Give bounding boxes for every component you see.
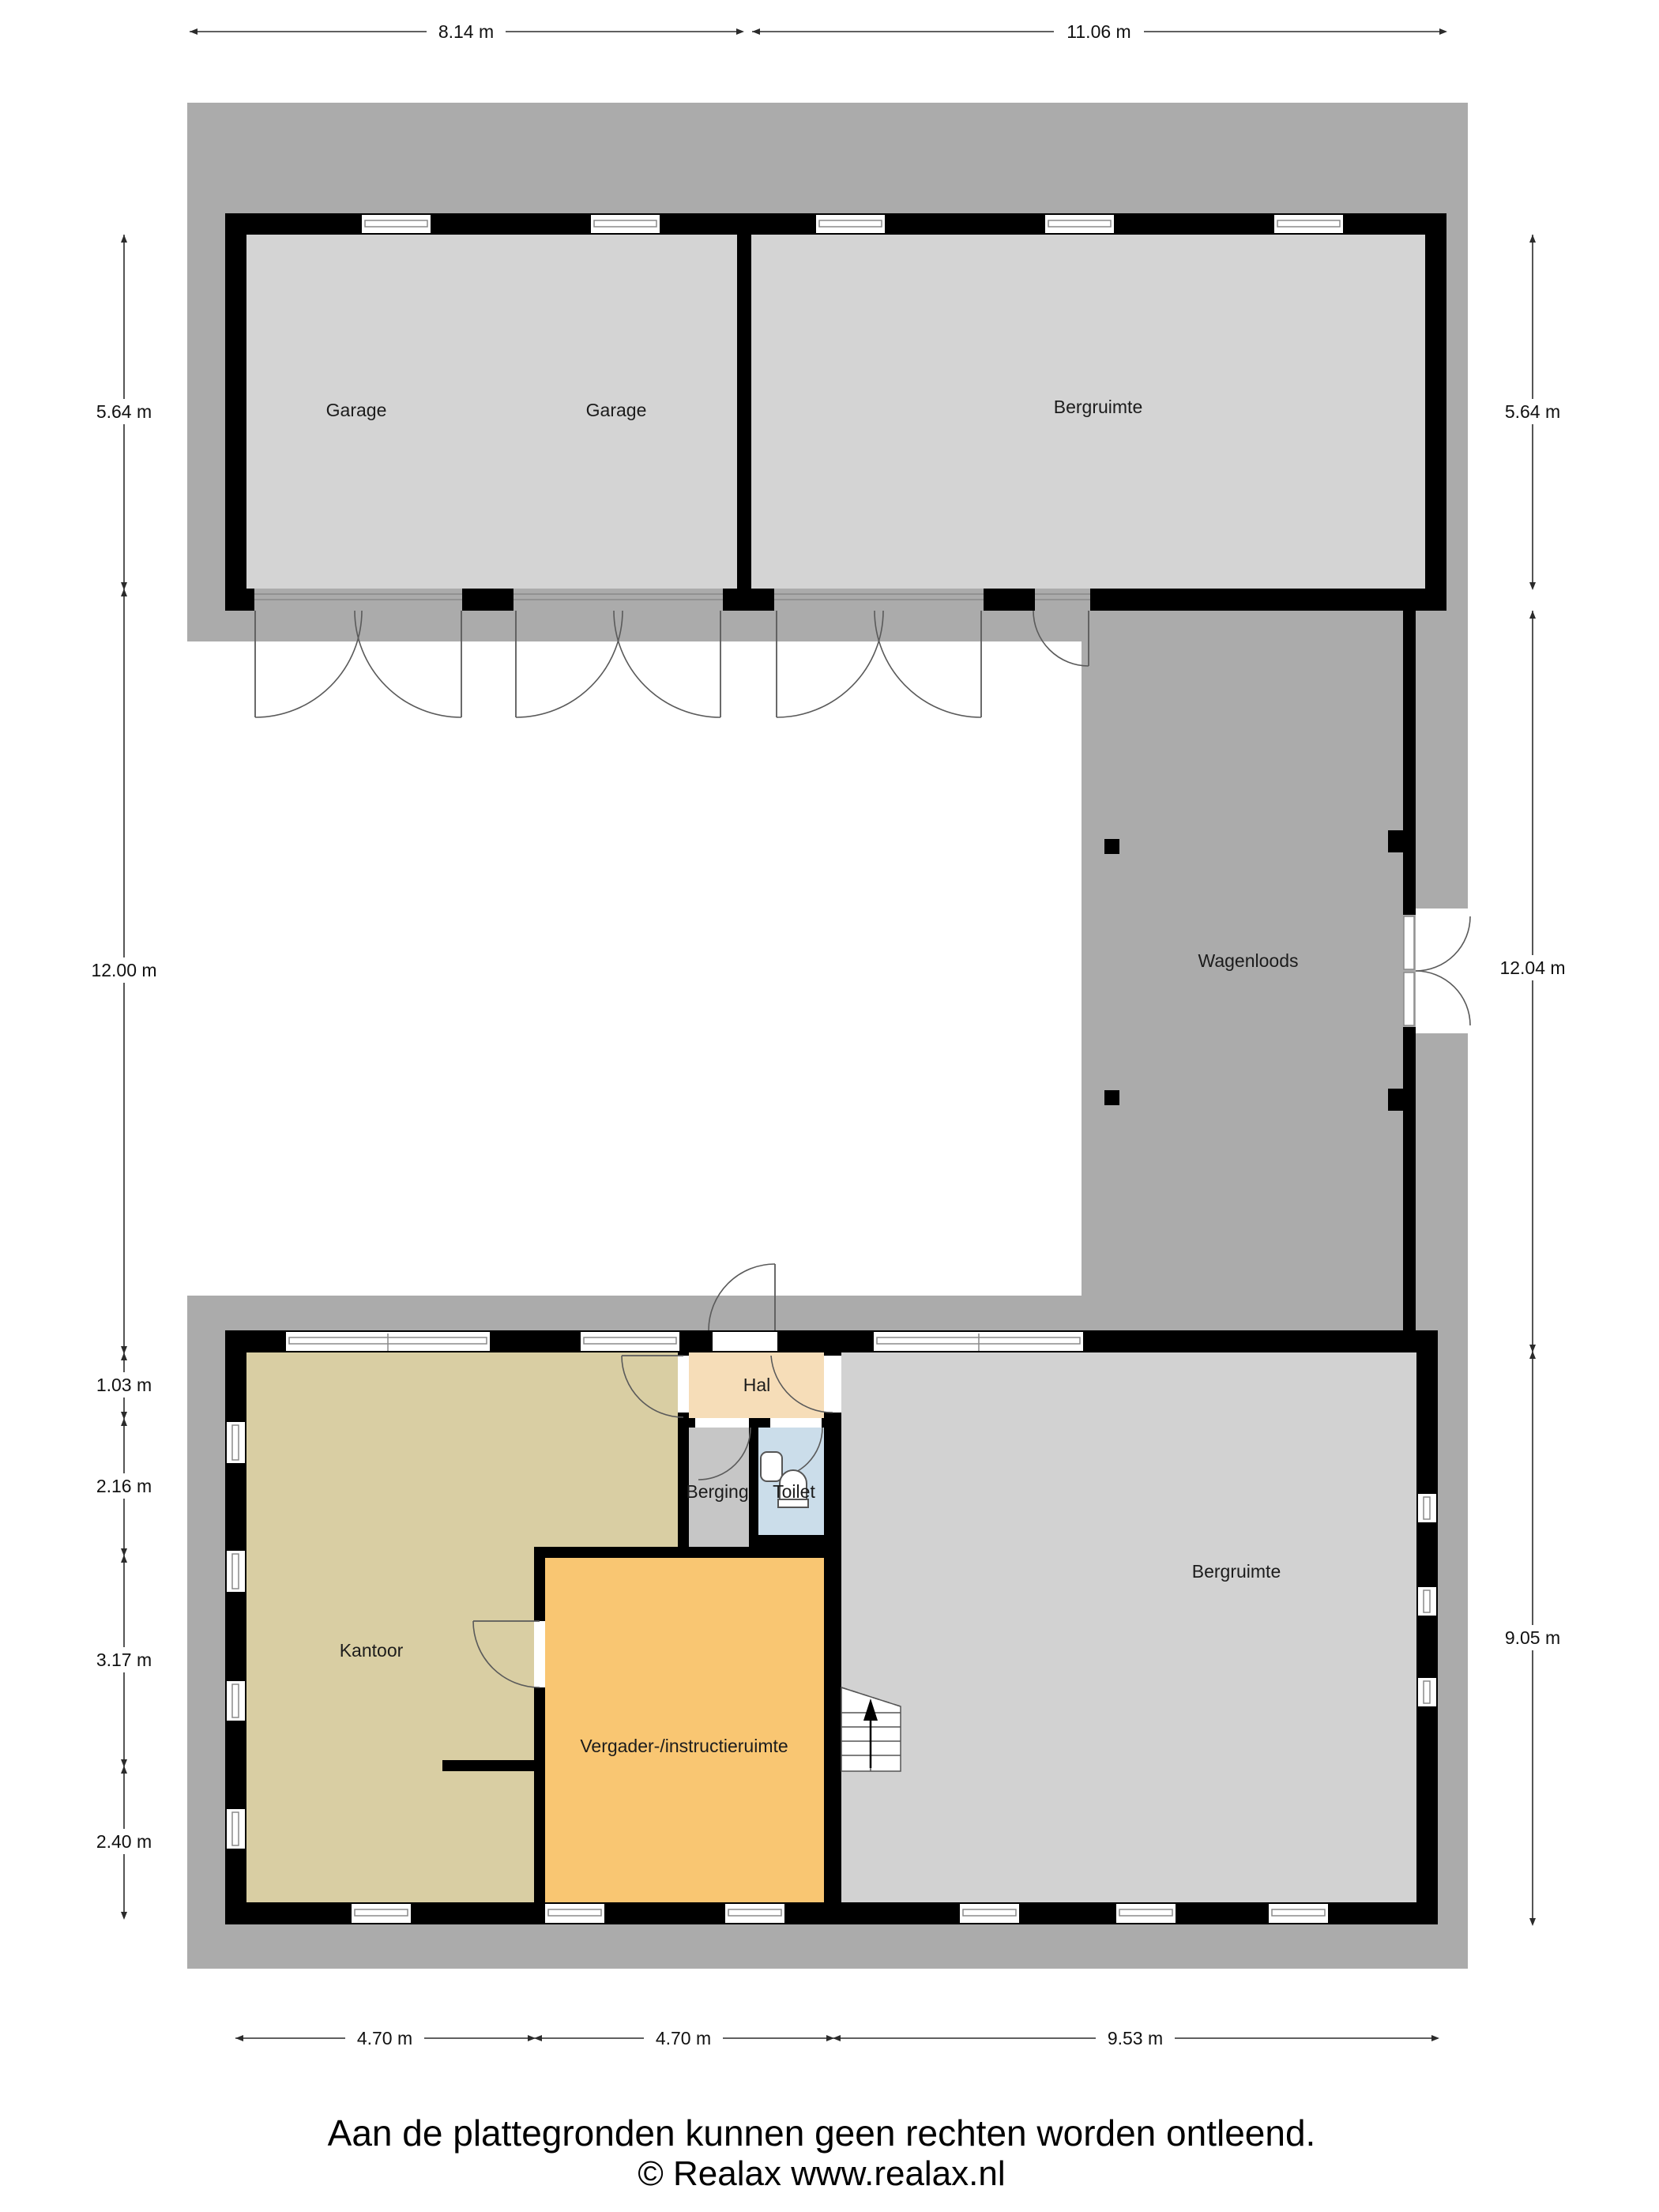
window-glazing (963, 1909, 1016, 1916)
window-glazing (1272, 1909, 1325, 1916)
door-opening (824, 1356, 841, 1413)
room-label-toilet: Toilet (773, 1481, 815, 1502)
wall-front-pier (723, 589, 774, 611)
window-glazing (1119, 1909, 1172, 1916)
window-glazing (365, 220, 427, 227)
window-glazing (1424, 1497, 1430, 1519)
window-glazing (548, 1909, 601, 1916)
window-glazing (1277, 220, 1340, 227)
dim-label-right-3: 9.05 m (1505, 1627, 1560, 1648)
wall-left (225, 213, 246, 611)
wall-front-segment (1090, 589, 1446, 611)
dim-label-left-6: 2.40 m (96, 1831, 152, 1852)
wall-right (1416, 1330, 1438, 1924)
dim-label-bottom-3: 9.53 m (1108, 2028, 1163, 2048)
wagenloods-east-wall-upper (1403, 611, 1416, 915)
door-opening (678, 1356, 689, 1413)
wall-vergader-north (534, 1547, 824, 1558)
floor-vergaderruimte (545, 1558, 824, 1902)
column-post (1104, 1090, 1119, 1105)
footer-disclaimer: Aan de plattegronden kunnen geen rechten… (328, 2112, 1316, 2154)
floorplan-drawing: Garage Garage Bergruimte Wagenloods Hal … (0, 0, 1659, 2212)
wall-front-pier (225, 589, 254, 611)
wall-garage-bergruimte-divider (737, 235, 751, 589)
footer-copyright: © Realax www.realax.nl (638, 2154, 1005, 2193)
wall-pilaster (1388, 830, 1403, 852)
floor-garages-bergruimte (246, 235, 1425, 589)
window-glazing (584, 1337, 676, 1344)
wall-front-pier (462, 589, 513, 611)
wall-kantoor-stub (442, 1760, 545, 1771)
dim-label-top-1: 8.14 m (438, 21, 494, 42)
dim-label-right-1: 5.64 m (1505, 401, 1560, 422)
washbasin (761, 1452, 782, 1481)
dim-label-left-5: 3.17 m (96, 1650, 152, 1670)
wall-bergruimte-west (824, 1352, 841, 1902)
room-label-bergruimte-top: Bergruimte (1054, 397, 1142, 417)
dim-label-left-4: 2.16 m (96, 1476, 152, 1496)
window-glazing (1424, 1590, 1430, 1612)
window-glazing (728, 1909, 781, 1916)
door-leaf-closed (1404, 916, 1414, 969)
window-glazing (232, 1425, 239, 1460)
wagenloods-east-wall-lower (1403, 1027, 1416, 1351)
wall-vergader-west (534, 1558, 545, 1902)
window-glazing (819, 220, 882, 227)
entrance-door-opening (713, 1332, 777, 1351)
window-glazing (1048, 220, 1111, 227)
door-opening (695, 1418, 749, 1428)
room-label-vergader: Vergader-/instructieruimte (580, 1736, 788, 1756)
window-glazing (232, 1812, 239, 1845)
room-label-garage-left: Garage (326, 400, 387, 420)
window-glazing (594, 220, 656, 227)
column-post (1104, 839, 1119, 854)
dim-label-left-2: 12.00 m (91, 960, 156, 980)
room-label-wagenloods: Wagenloods (1198, 950, 1298, 971)
window-glazing (1424, 1681, 1430, 1703)
door-opening (770, 1418, 822, 1428)
dim-label-bottom-2: 4.70 m (656, 2028, 711, 2048)
floor-bergruimte-bottom (841, 1352, 1416, 1902)
dim-label-left-1: 5.64 m (96, 401, 152, 422)
room-label-garage-right: Garage (586, 400, 647, 420)
window-glazing (232, 1554, 239, 1589)
wall-berging-toilet-divider (749, 1428, 758, 1535)
wall-pilaster (1388, 1089, 1403, 1111)
floorplan-page: Garage Garage Bergruimte Wagenloods Hal … (0, 0, 1659, 2212)
dim-label-top-2: 11.06 m (1066, 21, 1130, 42)
door-opening (534, 1621, 545, 1687)
room-label-berging: Berging (686, 1481, 748, 1502)
room-label-kantoor: Kantoor (340, 1640, 404, 1661)
room-label-bergruimte-bottom: Bergruimte (1192, 1561, 1281, 1582)
room-label-hal: Hal (743, 1375, 771, 1395)
door-leaf-closed (1404, 972, 1414, 1025)
wall-front-pier (984, 589, 1035, 611)
window-glazing (232, 1684, 239, 1717)
footer: Aan de plattegronden kunnen geen rechten… (328, 2112, 1316, 2193)
dim-label-right-2: 12.04 m (1499, 957, 1565, 978)
window-glazing (355, 1909, 408, 1916)
dim-label-bottom-1: 4.70 m (357, 2028, 412, 2048)
wall-right (1425, 213, 1446, 611)
dim-label-left-3: 1.03 m (96, 1375, 152, 1395)
